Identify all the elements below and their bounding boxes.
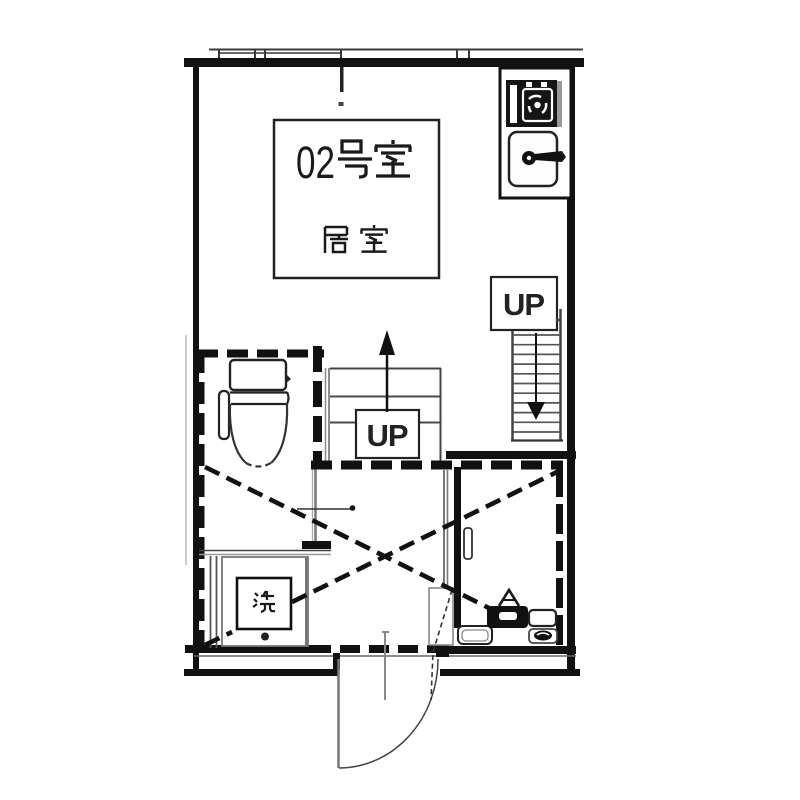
svg-text:UP: UP (503, 287, 544, 322)
svg-text:02: 02 (296, 137, 335, 188)
svg-text:UP: UP (366, 418, 407, 453)
